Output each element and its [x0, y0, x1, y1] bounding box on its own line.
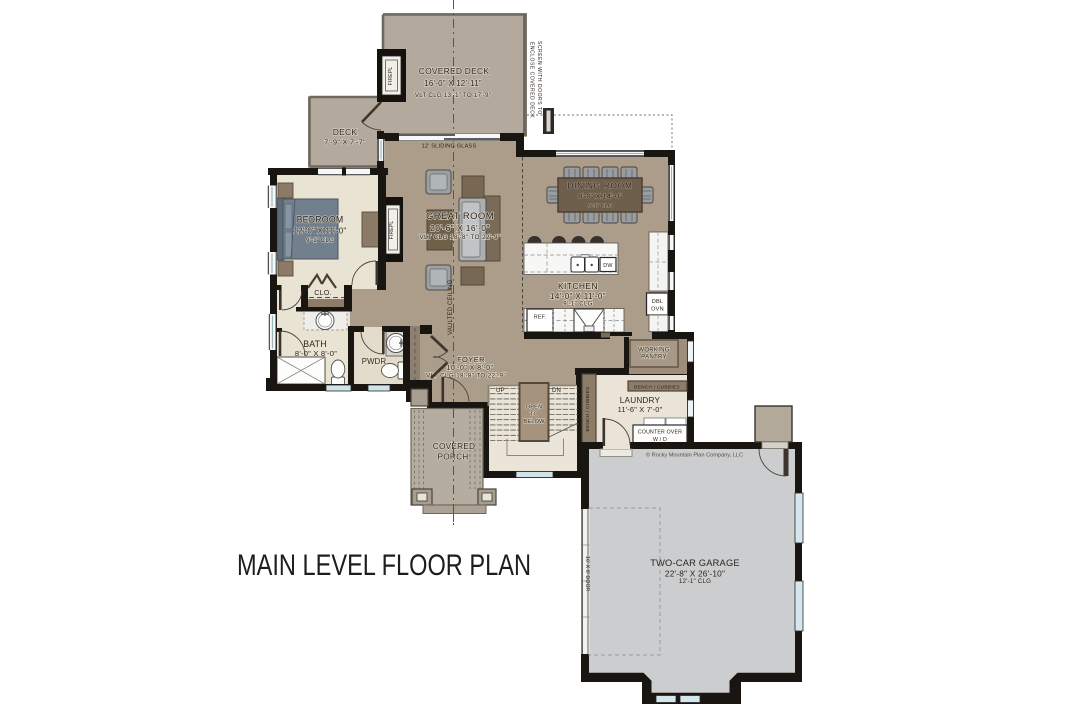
svg-text:TWO-CAR GARAGE: TWO-CAR GARAGE	[650, 558, 740, 568]
svg-text:© Rocky Mountain Plan Company,: © Rocky Mountain Plan Company, LLC	[646, 452, 743, 459]
svg-text:TO: TO	[530, 412, 539, 418]
svg-text:DBL: DBL	[652, 299, 663, 305]
svg-text:UP: UP	[496, 388, 505, 394]
svg-text:BENCH / CUBBIES: BENCH / CUBBIES	[634, 385, 680, 391]
svg-text:12' SLIDING GLASS: 12' SLIDING GLASS	[422, 144, 477, 150]
svg-text:OPEN: OPEN	[526, 405, 543, 411]
svg-text:GREAT ROOM: GREAT ROOM	[426, 211, 494, 222]
svg-text:MAIN LEVEL FLOOR PLAN: MAIN LEVEL FLOOR PLAN	[237, 549, 531, 582]
svg-text:VAULTED CEILING: VAULTED CEILING	[448, 279, 454, 335]
svg-text:11'-6" X 7'-0": 11'-6" X 7'-0"	[618, 405, 663, 414]
svg-text:BATH: BATH	[303, 339, 327, 349]
svg-text:PANTRY: PANTRY	[641, 354, 667, 361]
svg-text:COVERED DECK: COVERED DECK	[419, 66, 490, 76]
svg-text:CLO.: CLO.	[314, 288, 332, 297]
svg-text:OVN: OVN	[651, 307, 664, 313]
svg-text:DINING ROOM: DINING ROOM	[567, 182, 632, 191]
svg-text:14'-0" X 11'-0": 14'-0" X 11'-0"	[550, 292, 606, 301]
svg-text:12'-0" X 11'-0": 12'-0" X 11'-0"	[294, 227, 347, 236]
svg-text:VLT CLG 18'-8" TO 22'-9": VLT CLG 18'-8" TO 22'-9"	[426, 373, 506, 380]
svg-text:VLT CLG 18'-8" TO 22'-9": VLT CLG 18'-8" TO 22'-9"	[419, 234, 500, 241]
svg-text:WORKING: WORKING	[638, 347, 670, 354]
svg-text:9'-1" CLG: 9'-1" CLG	[563, 302, 593, 308]
svg-text:FIREPL: FIREPL	[389, 221, 395, 240]
svg-text:8'-0" X 14'-0": 8'-0" X 14'-0"	[578, 192, 622, 201]
svg-text:BENCH / CUBBIES: BENCH / CUBBIES	[585, 387, 591, 432]
svg-text:DN: DN	[552, 388, 561, 394]
svg-text:22'-8" X 26'-10": 22'-8" X 26'-10"	[665, 569, 725, 579]
svg-text:REF.: REF.	[534, 315, 546, 321]
svg-text:10'-0" X 8'-0": 10'-0" X 8'-0"	[446, 363, 493, 372]
svg-text:7'-9" X 7'-7": 7'-9" X 7'-7"	[324, 138, 366, 147]
svg-text:9'-1" CLG: 9'-1" CLG	[306, 238, 334, 244]
svg-text:DW: DW	[603, 263, 613, 269]
svg-text:12'-1" CLG: 12'-1" CLG	[679, 578, 711, 585]
svg-text:FIREPL: FIREPL	[388, 67, 394, 86]
svg-text:16' X 8' DOOR: 16' X 8' DOOR	[584, 556, 590, 592]
svg-text:LAUNDRY: LAUNDRY	[620, 396, 661, 405]
svg-text:PWDR: PWDR	[362, 357, 387, 366]
svg-text:ENCLOSE COVERED DECK: ENCLOSE COVERED DECK	[529, 42, 535, 118]
svg-text:DECK: DECK	[333, 127, 358, 137]
svg-text:BEDROOM: BEDROOM	[297, 215, 344, 225]
svg-text:BELOW: BELOW	[523, 419, 545, 425]
svg-text:COUNTER OVER: COUNTER OVER	[638, 430, 682, 436]
svg-text:20'-6" X 16'-0": 20'-6" X 16'-0"	[430, 223, 490, 233]
svg-text:9'-1" CLG: 9'-1" CLG	[588, 204, 612, 210]
svg-text:SCREEN WITH DOORS TO: SCREEN WITH DOORS TO	[536, 41, 542, 115]
svg-text:KITCHEN: KITCHEN	[558, 281, 598, 291]
